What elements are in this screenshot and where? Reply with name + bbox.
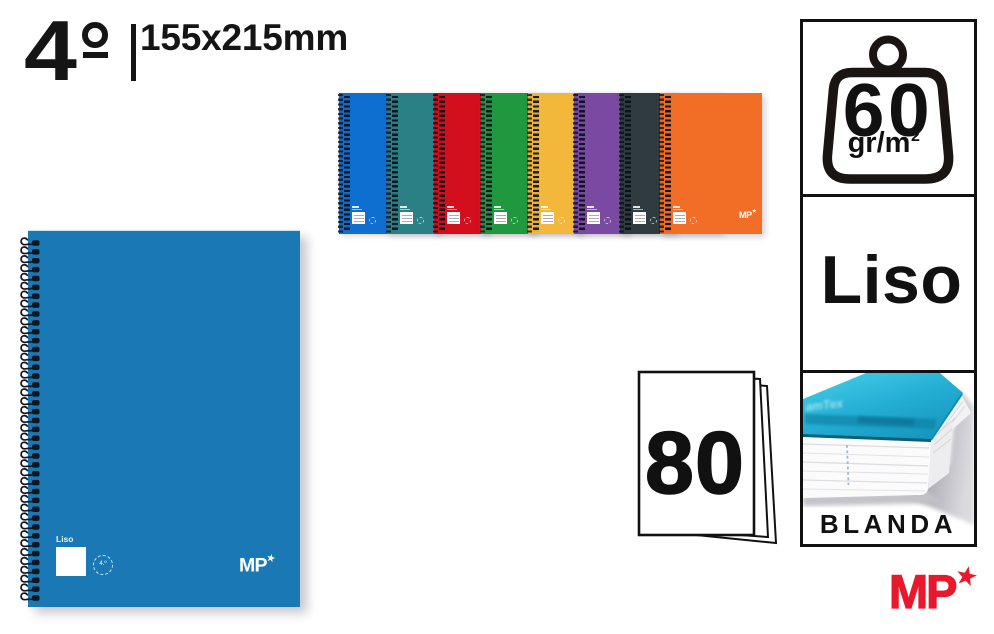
- svg-text:MP: MP: [239, 554, 267, 576]
- svg-text:2: 2: [911, 128, 920, 145]
- svg-text:80: 80: [645, 413, 745, 512]
- svg-text:gr/m: gr/m: [848, 127, 911, 159]
- svg-text:MP: MP: [889, 565, 956, 618]
